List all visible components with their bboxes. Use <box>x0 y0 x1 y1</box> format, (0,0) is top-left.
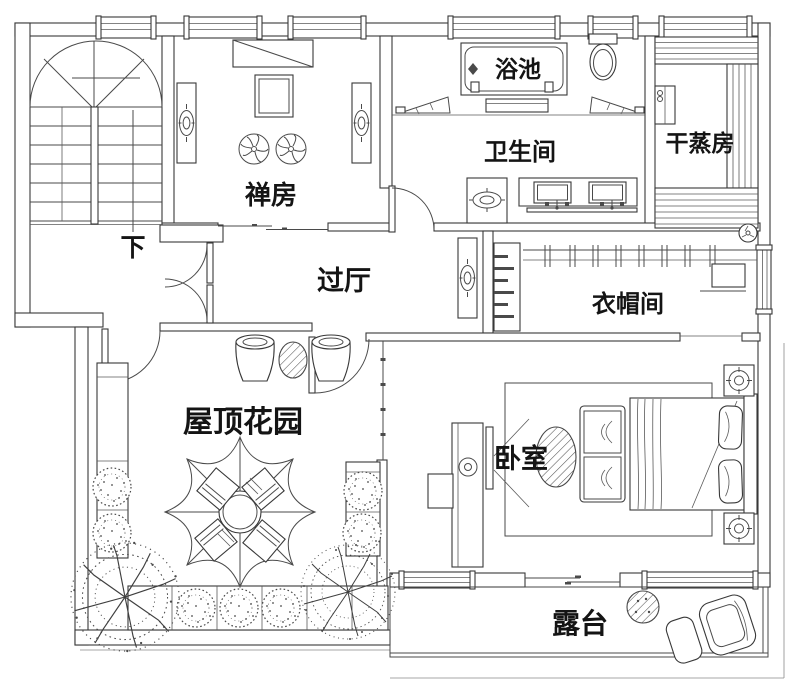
fan-icon <box>239 134 269 164</box>
sliding-door <box>525 576 620 585</box>
tv-cabinet-icon <box>428 419 529 567</box>
bathroom-label: 卫生间 <box>484 139 556 166</box>
cloakroom-label: 衣帽间 <box>592 290 664 318</box>
bed-bench-icon <box>580 406 625 502</box>
potted-plant-icon <box>627 591 659 623</box>
shrub-icon <box>344 472 382 510</box>
parasol <box>165 437 315 587</box>
floorplan-canvas: 下 禅房 浴池 <box>0 0 789 686</box>
terrace: 露台 <box>390 587 768 669</box>
hallway-label: 过厅 <box>317 266 371 296</box>
stool-icon <box>236 335 274 381</box>
shrub-icon <box>343 514 381 552</box>
stool-icon <box>312 335 350 381</box>
hanger-icon <box>545 245 550 267</box>
hanger-icon <box>593 245 598 267</box>
cloakroom: 衣帽间 <box>494 243 757 331</box>
floorplan-svg: 下 禅房 浴池 <box>0 0 789 686</box>
vanity-sinks <box>519 178 637 212</box>
dry-sauna: 干蒸房 <box>655 37 758 242</box>
nightstand-icon <box>724 513 754 544</box>
speaker-icon <box>458 238 477 318</box>
toilet-icon <box>589 34 617 80</box>
shrub-icon <box>262 589 300 627</box>
shrub-icon <box>177 589 215 627</box>
meditation-room: 禅房 <box>177 40 371 210</box>
terrace-label: 露台 <box>552 607 608 639</box>
speaker-icon <box>352 83 371 163</box>
window <box>288 16 366 39</box>
window <box>659 16 752 39</box>
window <box>96 16 156 39</box>
dry-sauna-label: 干蒸房 <box>666 130 735 156</box>
bathroom: 浴池 卫生间 <box>396 34 644 223</box>
sauna-heater-icon <box>655 86 675 124</box>
roof-garden-label: 屋顶花园 <box>183 406 303 439</box>
lounge-chair-icon <box>662 592 759 669</box>
pillow-icon <box>718 406 742 450</box>
round-table-icon <box>279 342 307 378</box>
hanger-icon <box>662 245 667 267</box>
sprinkler-icon <box>739 224 757 242</box>
window <box>642 571 758 589</box>
drain-fixture-icon <box>467 178 507 223</box>
speaker-icon <box>177 83 196 163</box>
hallway: 过厅 <box>317 238 477 318</box>
hanger-icon <box>616 245 621 267</box>
window <box>399 571 475 589</box>
bedroom-label: 卧室 <box>494 443 548 474</box>
window <box>184 16 262 39</box>
bedroom: 卧室 <box>428 365 757 567</box>
bathroom-door <box>389 186 434 232</box>
bath-pool-label: 浴池 <box>495 56 541 82</box>
stairs-label: 下 <box>120 234 145 262</box>
shrub-icon <box>220 589 258 627</box>
double-door <box>165 243 213 323</box>
bath-step-ramp <box>590 97 644 114</box>
window <box>756 245 772 314</box>
staircase: 下 <box>30 41 162 262</box>
meditation-room-label: 禅房 <box>244 180 297 210</box>
bath-step-ramp <box>396 97 450 114</box>
fan-icon <box>276 134 306 164</box>
pillow-icon <box>718 460 742 504</box>
hanger-icon <box>570 245 575 267</box>
hanger-icon <box>639 245 644 267</box>
hanger-icon <box>685 245 690 267</box>
bed-icon <box>630 394 757 514</box>
nightstand-icon <box>724 365 754 396</box>
shrub-icon <box>93 468 131 506</box>
window <box>448 16 560 39</box>
shrub-icon <box>93 514 131 552</box>
